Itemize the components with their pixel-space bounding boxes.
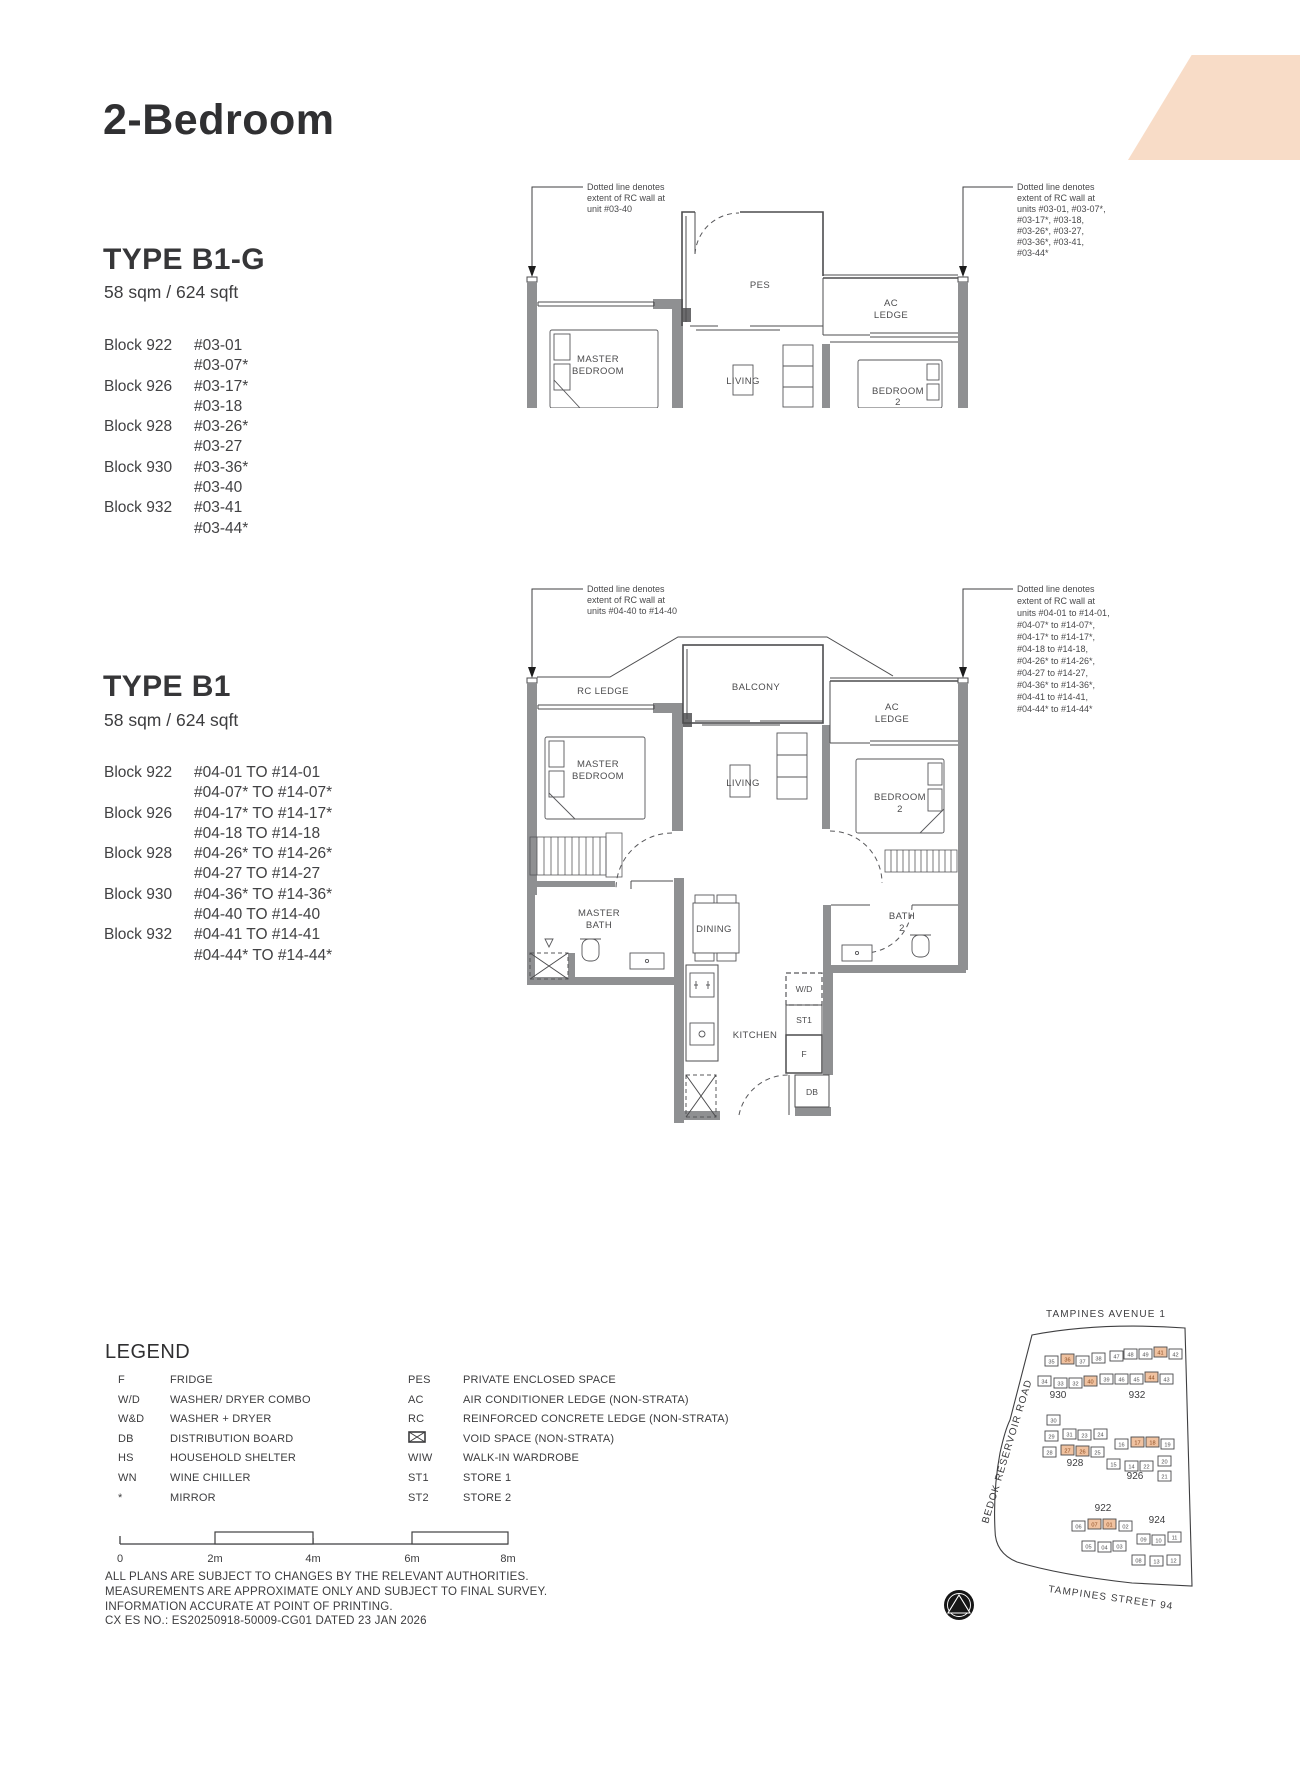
- map-unit-number: 32: [1072, 1382, 1078, 1388]
- svg-text:units #04-01 to #14-01,: units #04-01 to #14-01,: [1017, 608, 1110, 618]
- block-name: Block 932: [104, 925, 194, 945]
- svg-text:ST1: ST1: [796, 1015, 812, 1025]
- block-name: Block 932: [104, 498, 194, 518]
- svg-text:extent of RC wall at: extent of RC wall at: [587, 595, 666, 605]
- distribution-board: DB: [795, 1075, 829, 1107]
- ac-ledge: AC LEDGE: [823, 275, 958, 335]
- legend-abbr: ST1: [408, 1469, 463, 1489]
- block-name: Block 922: [104, 763, 194, 783]
- unit-range: #04-41 TO #14-41: [194, 925, 332, 945]
- corner-decoration: [1128, 55, 1300, 160]
- svg-text:BATH: BATH: [889, 911, 915, 922]
- map-unit-number: 04: [1101, 1546, 1107, 1552]
- legend-abbr: *: [118, 1489, 170, 1509]
- washer-dryer: W/D: [786, 973, 822, 1005]
- void-space: [530, 953, 568, 979]
- map-unit-number: 43: [1163, 1378, 1169, 1384]
- block-name: Block 930: [104, 458, 194, 478]
- map-unit-number: 12: [1170, 1559, 1176, 1565]
- svg-text:DINING: DINING: [696, 924, 732, 935]
- map-unit-number: 07: [1091, 1523, 1097, 1529]
- svg-text:#04-18 to #14-18,: #04-18 to #14-18,: [1017, 644, 1088, 654]
- svg-text:AC: AC: [884, 298, 898, 309]
- disclaimer-line: CX ES NO.: ES20250918-50009-CG01 DATED 2…: [105, 1614, 547, 1629]
- type-b1-heading: TYPE B1: [103, 670, 231, 704]
- svg-text:BEDROOM: BEDROOM: [872, 386, 924, 397]
- map-unit-number: 25: [1094, 1451, 1100, 1457]
- svg-text:Dotted line denotes: Dotted line denotes: [587, 584, 665, 594]
- void-space-icon: [408, 1430, 463, 1450]
- map-unit-number: 06: [1075, 1525, 1081, 1531]
- svg-text:#04-07* to #14-07*,: #04-07* to #14-07*,: [1017, 620, 1095, 630]
- map-unit-number: 18: [1149, 1441, 1155, 1447]
- master-bedroom: MASTER BEDROOM: [530, 737, 645, 877]
- map-unit-number: 42: [1172, 1353, 1178, 1359]
- legend-desc: DISTRIBUTION BOARD: [170, 1430, 311, 1450]
- map-unit-number: 09: [1140, 1538, 1146, 1544]
- map-unit-number: 23: [1081, 1434, 1087, 1440]
- disclaimer: ALL PLANS ARE SUBJECT TO CHANGES BY THE …: [105, 1570, 547, 1629]
- map-unit-number: 35: [1048, 1360, 1054, 1366]
- svg-text:Dotted line denotes: Dotted line denotes: [1017, 584, 1095, 594]
- svg-text:LIVING: LIVING: [726, 376, 760, 387]
- unit-no: #03-36*: [194, 458, 248, 478]
- scale-bar: 0 2m 4m 6m 8m: [95, 1522, 525, 1574]
- map-unit-number: 47: [1113, 1355, 1119, 1361]
- legend-abbr: WIW: [408, 1449, 463, 1469]
- legend-title: LEGEND: [105, 1341, 190, 1364]
- unit-range: #04-07* TO #14-07*: [194, 783, 332, 803]
- svg-text:BEDROOM: BEDROOM: [572, 771, 624, 782]
- svg-text:2: 2: [895, 397, 901, 408]
- svg-text:#03-44*: #03-44*: [1017, 248, 1049, 258]
- map-unit-number: 14: [1128, 1465, 1134, 1471]
- legend-abbr: WN: [118, 1469, 170, 1489]
- svg-text:Dotted line denotes: Dotted line denotes: [1017, 182, 1095, 192]
- map-unit-number: 22: [1143, 1465, 1149, 1471]
- dining-area: DINING: [693, 895, 739, 961]
- map-unit-number: 20: [1161, 1460, 1167, 1466]
- type-b1g-unit-table: Block 922#03-01 #03-07* Block 926#03-17*…: [104, 336, 248, 539]
- svg-text:BEDROOM: BEDROOM: [572, 366, 624, 377]
- svg-text:extent of RC wall at: extent of RC wall at: [1017, 193, 1096, 203]
- type-b1-unit-table: Block 922#04-01 TO #14-01 #04-07* TO #14…: [104, 763, 332, 966]
- svg-text:units #04-40 to #14-40: units #04-40 to #14-40: [587, 606, 677, 616]
- map-block-label: 924: [1149, 1515, 1166, 1526]
- map-unit-number: 40: [1087, 1380, 1093, 1386]
- unit-range: #04-17* TO #14-17*: [194, 804, 332, 824]
- svg-text:MASTER: MASTER: [578, 908, 620, 919]
- block-name: Block 922: [104, 336, 194, 356]
- map-unit-number: 24: [1097, 1433, 1103, 1439]
- disclaimer-line: INFORMATION ACCURATE AT POINT OF PRINTIN…: [105, 1600, 547, 1615]
- legend-column-1: FFRIDGE W/DWASHER/ DRYER COMBO W&DWASHER…: [118, 1371, 311, 1508]
- svg-text:AC: AC: [885, 702, 899, 713]
- legend-desc: STORE 2: [463, 1489, 729, 1509]
- legend-desc: REINFORCED CONCRETE LEDGE (NON-STRATA): [463, 1410, 729, 1430]
- svg-text:#04-27 to #14-27,: #04-27 to #14-27,: [1017, 668, 1088, 678]
- unit-range: #04-36* TO #14-36*: [194, 885, 332, 905]
- svg-text:RC LEDGE: RC LEDGE: [577, 686, 629, 697]
- svg-text:extent of RC wall at: extent of RC wall at: [587, 193, 666, 203]
- map-unit-number: 31: [1066, 1433, 1072, 1439]
- svg-text:#04-41 to #14-41,: #04-41 to #14-41,: [1017, 692, 1088, 702]
- unit-range: #04-18 TO #14-18: [194, 824, 332, 844]
- legend-desc: AIR CONDITIONER LEDGE (NON-STRATA): [463, 1391, 729, 1411]
- map-unit-number: 29: [1048, 1435, 1054, 1441]
- svg-text:units #03-01, #03-07*,: units #03-01, #03-07*,: [1017, 204, 1106, 214]
- map-block-label: 926: [1127, 1471, 1144, 1482]
- unit-range: #04-40 TO #14-40: [194, 905, 332, 925]
- annotation-rc-wall-left: Dotted line denotes extent of RC wall at…: [527, 584, 677, 683]
- map-unit-number: 21: [1161, 1475, 1167, 1481]
- map-unit-number: 08: [1135, 1559, 1141, 1565]
- unit-no: #03-44*: [194, 519, 248, 539]
- type-b1g-heading: TYPE B1-G: [103, 243, 265, 277]
- wardrobe: [885, 850, 957, 872]
- living-room: LIVING: [726, 345, 813, 407]
- unit-no: #03-18: [194, 397, 248, 417]
- svg-text:LEDGE: LEDGE: [874, 310, 908, 321]
- unit-no: #03-27: [194, 437, 248, 457]
- unit-no: #03-40: [194, 478, 248, 498]
- legend-abbr: PES: [408, 1371, 463, 1391]
- legend-abbr: W/D: [118, 1391, 170, 1411]
- floorplan-page: 2-Bedroom TYPE B1-G 58 sqm / 624 sqft Bl…: [0, 0, 1300, 1772]
- map-unit-number: 26: [1079, 1450, 1085, 1456]
- map-unit-number: 02: [1122, 1525, 1128, 1531]
- svg-text:PES: PES: [750, 280, 770, 291]
- map-unit-number: 19: [1164, 1443, 1170, 1449]
- unit-range: #04-44* TO #14-44*: [194, 946, 332, 966]
- bedroom-2: BEDROOM 2: [830, 342, 958, 408]
- svg-text:F: F: [801, 1049, 806, 1059]
- map-unit-number: 28: [1046, 1451, 1052, 1457]
- bedroom-2: BEDROOM 2: [830, 759, 957, 883]
- svg-text:#03-36*, #03-41,: #03-36*, #03-41,: [1017, 237, 1084, 247]
- svg-text:2m: 2m: [207, 1553, 222, 1565]
- legend-abbr: ST2: [408, 1489, 463, 1509]
- void-space: [686, 1075, 716, 1117]
- block-name: Block 928: [104, 844, 194, 864]
- svg-text:#04-36* to #14-36*,: #04-36* to #14-36*,: [1017, 680, 1095, 690]
- legend-desc: PRIVATE ENCLOSED SPACE: [463, 1371, 729, 1391]
- svg-text:0: 0: [117, 1553, 123, 1565]
- block-name: Block 926: [104, 804, 194, 824]
- block-name: Block 926: [104, 377, 194, 397]
- map-unit-blocks: 3536373834333240399304748494142464544439…: [1038, 1347, 1182, 1566]
- legend-desc: WASHER + DRYER: [170, 1410, 311, 1430]
- legend-abbr: DB: [118, 1430, 170, 1450]
- svg-text:extent of RC wall at: extent of RC wall at: [1017, 596, 1096, 606]
- legend-abbr: HS: [118, 1449, 170, 1469]
- map-unit-number: 33: [1057, 1382, 1063, 1388]
- map-unit-number: 01: [1106, 1523, 1112, 1529]
- store-1: ST1: [786, 1005, 822, 1035]
- disclaimer-line: MEASUREMENTS ARE APPROXIMATE ONLY AND SU…: [105, 1585, 547, 1600]
- rc-ledge: RC LEDGE: [537, 637, 893, 709]
- disclaimer-line: ALL PLANS ARE SUBJECT TO CHANGES BY THE …: [105, 1570, 547, 1585]
- svg-text:BALCONY: BALCONY: [732, 682, 780, 693]
- floorplan-b1: Dotted line denotes extent of RC wall at…: [450, 515, 1210, 1135]
- legend-abbr: W&D: [118, 1410, 170, 1430]
- svg-text:LEDGE: LEDGE: [875, 714, 909, 725]
- floorplan-b1g: Dotted line denotes extent of RC wall at…: [450, 158, 1210, 408]
- map-block-label: 930: [1050, 1390, 1067, 1401]
- map-unit-number: 49: [1142, 1353, 1148, 1359]
- legend-desc: WASHER/ DRYER COMBO: [170, 1391, 311, 1411]
- page-title: 2-Bedroom: [103, 96, 334, 145]
- type-b1-area: 58 sqm / 624 sqft: [104, 710, 238, 731]
- legend-desc: WINE CHILLER: [170, 1469, 311, 1489]
- svg-text:#03-17*, #03-18,: #03-17*, #03-18,: [1017, 215, 1084, 225]
- living-room: LIVING: [726, 733, 807, 799]
- svg-text:4m: 4m: [305, 1553, 320, 1565]
- svg-text:8m: 8m: [500, 1553, 515, 1565]
- legend-desc: HOUSEHOLD SHELTER: [170, 1449, 311, 1469]
- legend-abbr: F: [118, 1371, 170, 1391]
- svg-text:#04-44* to #14-44*: #04-44* to #14-44*: [1017, 704, 1093, 714]
- fridge: F: [786, 1035, 822, 1073]
- unit-range: #04-01 TO #14-01: [194, 763, 332, 783]
- annotation-rc-wall-left: Dotted line denotes extent of RC wall at…: [527, 182, 666, 282]
- map-unit-number: 11: [1172, 1536, 1178, 1542]
- balcony: BALCONY: [683, 645, 823, 725]
- unit-range: #04-26* TO #14-26*: [194, 844, 332, 864]
- svg-text:2: 2: [897, 804, 903, 815]
- svg-text:#04-26* to #14-26*,: #04-26* to #14-26*,: [1017, 656, 1095, 666]
- svg-text:DB: DB: [806, 1087, 818, 1097]
- ac-ledge: AC LEDGE: [830, 678, 958, 745]
- svg-text:unit #03-40: unit #03-40: [587, 204, 632, 214]
- map-unit-number: 38: [1095, 1357, 1101, 1363]
- map-unit-number: 41: [1157, 1351, 1163, 1357]
- map-unit-number: 10: [1155, 1539, 1161, 1545]
- map-unit-number: 30: [1050, 1419, 1056, 1425]
- map-block-label: 932: [1129, 1390, 1146, 1401]
- map-block-label: 922: [1095, 1503, 1112, 1514]
- svg-text:#04-17* to #14-17*,: #04-17* to #14-17*,: [1017, 632, 1095, 642]
- pes-room: PES: [682, 212, 823, 330]
- svg-text:MASTER: MASTER: [577, 759, 619, 770]
- svg-text:MASTER: MASTER: [577, 354, 619, 365]
- svg-text:Dotted line denotes: Dotted line denotes: [587, 182, 665, 192]
- map-unit-number: 48: [1127, 1353, 1133, 1359]
- legend-desc: STORE 1: [463, 1469, 729, 1489]
- map-unit-number: 36: [1064, 1358, 1070, 1364]
- map-unit-number: 05: [1085, 1545, 1091, 1551]
- master-bath: MASTER BATH: [530, 833, 673, 979]
- road-label-top: TAMPINES AVENUE 1: [1046, 1309, 1166, 1320]
- svg-text:LIVING: LIVING: [726, 778, 760, 789]
- unit-no: #03-26*: [194, 417, 248, 437]
- bath-2: BATH 2: [831, 905, 958, 961]
- annotation-rc-wall-right: Dotted line denotes extent of RC wall at…: [958, 182, 1106, 282]
- svg-text:2: 2: [899, 923, 905, 934]
- road-label-bottom: TAMPINES STREET 94: [1048, 1584, 1174, 1612]
- legend-column-2: PESPRIVATE ENCLOSED SPACE ACAIR CONDITIO…: [408, 1371, 729, 1508]
- svg-text:KITCHEN: KITCHEN: [733, 1030, 778, 1041]
- block-name: Block 928: [104, 417, 194, 437]
- site-map: TAMPINES AVENUE 1 BEDOK RESERVOIR ROAD T…: [900, 1290, 1220, 1630]
- map-unit-number: 16: [1118, 1443, 1124, 1449]
- road-label-left: BEDOK RESERVOIR ROAD: [980, 1378, 1034, 1525]
- svg-text:BEDROOM: BEDROOM: [874, 792, 926, 803]
- svg-text:BATH: BATH: [586, 920, 612, 931]
- wardrobe: [530, 833, 622, 877]
- unit-no: #03-07*: [194, 356, 248, 376]
- master-bedroom: MASTER BEDROOM: [550, 330, 658, 408]
- map-unit-number: 46: [1118, 1378, 1124, 1384]
- map-block-label: 928: [1067, 1458, 1084, 1469]
- legend-desc: WALK-IN WARDROBE: [463, 1449, 729, 1469]
- svg-text:W/D: W/D: [796, 984, 813, 994]
- block-name: Block 930: [104, 885, 194, 905]
- annotation-rc-wall-right: Dotted line denotes extent of RC wall at…: [958, 584, 1110, 714]
- map-unit-number: 39: [1103, 1378, 1109, 1384]
- map-unit-number: 37: [1079, 1360, 1085, 1366]
- north-arrow-icon: [944, 1590, 974, 1620]
- legend-abbr: AC: [408, 1391, 463, 1411]
- legend-desc: MIRROR: [170, 1489, 311, 1509]
- unit-no: #03-41: [194, 498, 248, 518]
- legend-desc: FRIDGE: [170, 1371, 311, 1391]
- map-unit-number: 27: [1064, 1449, 1070, 1455]
- map-unit-number: 15: [1110, 1463, 1116, 1469]
- map-unit-number: 45: [1133, 1378, 1139, 1384]
- unit-no: #03-17*: [194, 377, 248, 397]
- unit-range: #04-27 TO #14-27: [194, 864, 332, 884]
- unit-no: #03-01: [194, 336, 248, 356]
- legend-desc: VOID SPACE (NON-STRATA): [463, 1430, 729, 1450]
- svg-text:#03-26*, #03-27,: #03-26*, #03-27,: [1017, 226, 1084, 236]
- map-unit-number: 34: [1041, 1380, 1047, 1386]
- map-unit-number: 17: [1134, 1441, 1140, 1447]
- kitchen: KITCHEN W/D ST1 F DB: [686, 965, 829, 1117]
- map-unit-number: 44: [1148, 1376, 1154, 1382]
- svg-text:6m: 6m: [404, 1553, 419, 1565]
- map-unit-number: 03: [1116, 1545, 1122, 1551]
- type-b1g-area: 58 sqm / 624 sqft: [104, 282, 238, 303]
- legend-abbr: RC: [408, 1410, 463, 1430]
- map-unit-number: 13: [1153, 1560, 1159, 1566]
